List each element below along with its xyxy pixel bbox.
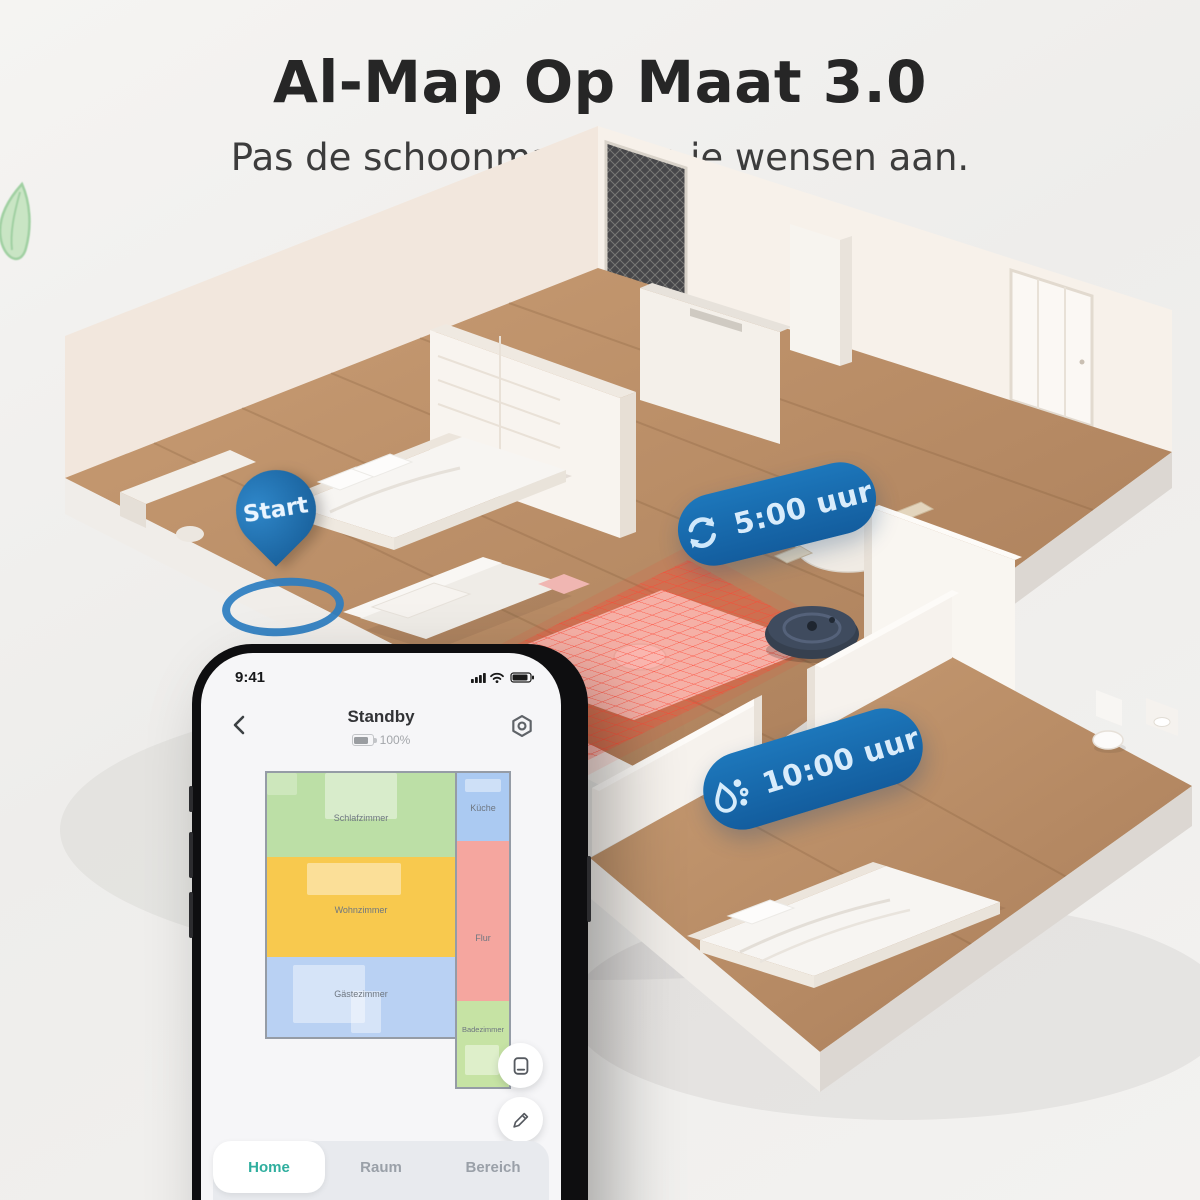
battery-icon [352, 734, 374, 746]
dock-button[interactable] [498, 1043, 543, 1088]
door [1011, 270, 1092, 426]
spin-icon [677, 507, 728, 558]
status-time: 9:41 [235, 669, 265, 686]
gear-icon [509, 713, 535, 739]
room-label: Badezimmer [457, 1025, 509, 1034]
tab-bar: Home Raum Bereich [213, 1141, 549, 1200]
start-pin-ring [220, 574, 346, 640]
phone-side-button [189, 892, 193, 938]
app-map: Schlafzimmer Wohnzimmer Gästezimmer [265, 771, 513, 1091]
status-bar: 9:41 [201, 653, 561, 697]
app-header: Standby 100% [201, 701, 561, 765]
map-right-block: Küche Flur Badezimmer [455, 771, 511, 1089]
house-illustration [0, 0, 1200, 1200]
map-pin-icon: Start [219, 453, 332, 566]
phone-screen: 9:41 [201, 653, 561, 1200]
marketing-canvas: Al-Map Op Maat 3.0 Pas de schoonmaak aan… [0, 0, 1200, 1200]
tab-home[interactable]: Home [213, 1141, 325, 1193]
room-label: Wohnzimmer [267, 905, 455, 915]
signal-icon [471, 673, 486, 683]
room-label: Gästezimmer [267, 989, 455, 999]
battery-icon [511, 673, 534, 682]
room-flur[interactable]: Flur [457, 841, 509, 1001]
battery-percent: 100% [380, 733, 411, 747]
map-left-block: Schlafzimmer Wohnzimmer Gästezimmer [265, 771, 457, 1039]
phone-power-button [587, 856, 591, 922]
room-label: Küche [457, 803, 509, 813]
tab-bereich[interactable]: Bereich [437, 1141, 549, 1193]
tab-raum[interactable]: Raum [325, 1141, 437, 1193]
room-label: Flur [457, 933, 509, 943]
map-edit-button[interactable] [498, 1097, 543, 1142]
vacuum-time-label: 5:00 uur [730, 474, 876, 541]
phone-side-button [189, 786, 193, 812]
room-gaestezimmer[interactable]: Gästezimmer [267, 957, 455, 1037]
settings-button[interactable] [505, 709, 539, 743]
room-label: Schlafzimmer [267, 813, 455, 823]
status-icons [471, 670, 535, 684]
room-wohnzimmer[interactable]: Wohnzimmer [267, 857, 455, 957]
map-edit-icon [510, 1109, 532, 1131]
start-pin-label: Start [242, 492, 311, 528]
dock-icon [510, 1055, 532, 1077]
room-schlafzimmer[interactable]: Schlafzimmer [267, 773, 455, 857]
wifi-icon [491, 674, 503, 683]
phone-mockup: 9:41 [192, 644, 588, 1200]
start-pin: Start [220, 462, 340, 632]
phone-side-button [189, 832, 193, 878]
room-kueche[interactable]: Küche [457, 773, 509, 841]
